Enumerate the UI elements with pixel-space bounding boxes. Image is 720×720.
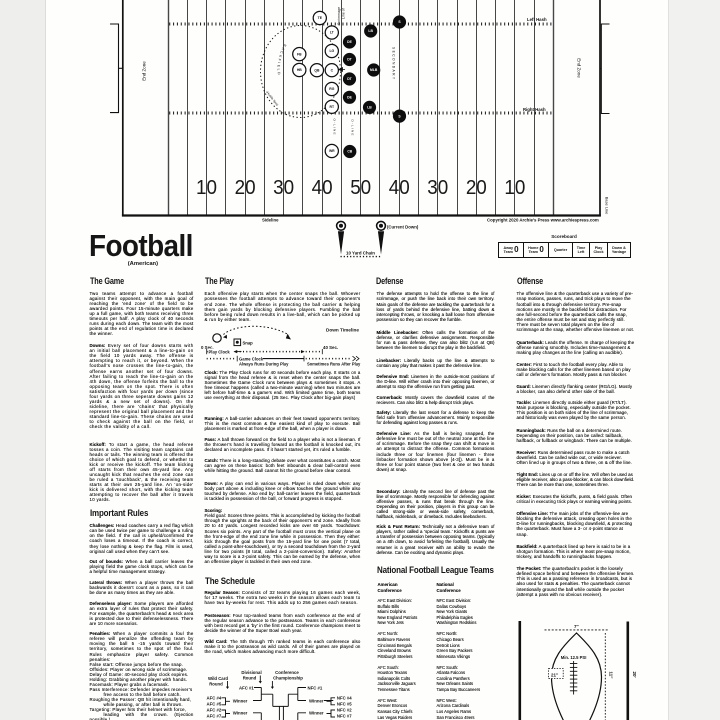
svg-text:Down Timeline: Down Timeline [326, 328, 359, 333]
svg-text:Winner: Winner [233, 699, 248, 704]
svg-text:Winner: Winner [309, 711, 324, 716]
svg-text:NFC #1: NFC #1 [308, 685, 323, 690]
svg-text:Conference: Conference [275, 670, 299, 675]
svg-text:Round: Round [209, 682, 223, 687]
svg-text:NFC #2: NFC #2 [337, 708, 352, 713]
svg-text:Winner: Winner [233, 711, 248, 716]
svg-text:Round: Round [243, 676, 257, 681]
svg-text:Championship: Championship [273, 676, 303, 681]
svg-text:AFC #4: AFC #4 [207, 696, 222, 701]
svg-text:Wild Card: Wild Card [208, 676, 228, 681]
svg-text:Min. 12.5 PSI: Min. 12.5 PSI [561, 655, 587, 660]
svg-text:NFC #7: NFC #7 [337, 714, 352, 719]
svg-text:Sometimes Runs After Play: Sometimes Runs After Play [307, 361, 361, 366]
svg-text:AFC #2: AFC #2 [207, 708, 222, 713]
svg-text:20′: 20′ [632, 672, 637, 678]
svg-text:21″: 21″ [551, 673, 559, 678]
svg-text:AFC #1: AFC #1 [239, 685, 254, 690]
svg-text:Divisional: Divisional [241, 670, 261, 675]
svg-text:Winner: Winner [309, 699, 324, 704]
svg-text:AFC #7: AFC #7 [207, 714, 222, 719]
svg-text:Always Runs During Play: Always Runs During Play [239, 361, 289, 366]
svg-text:NFC #4: NFC #4 [337, 696, 352, 701]
svg-text:7″: 7″ [574, 624, 580, 629]
svg-text:AFC #5: AFC #5 [207, 701, 222, 706]
svg-text:Play Clock: Play Clock [209, 349, 231, 354]
svg-text:Snap: Snap [243, 341, 254, 346]
svg-text:NFC #5: NFC #5 [337, 701, 352, 706]
svg-text:11″: 11″ [608, 672, 613, 680]
svg-text:40 Sec.: 40 Sec. [323, 345, 338, 350]
